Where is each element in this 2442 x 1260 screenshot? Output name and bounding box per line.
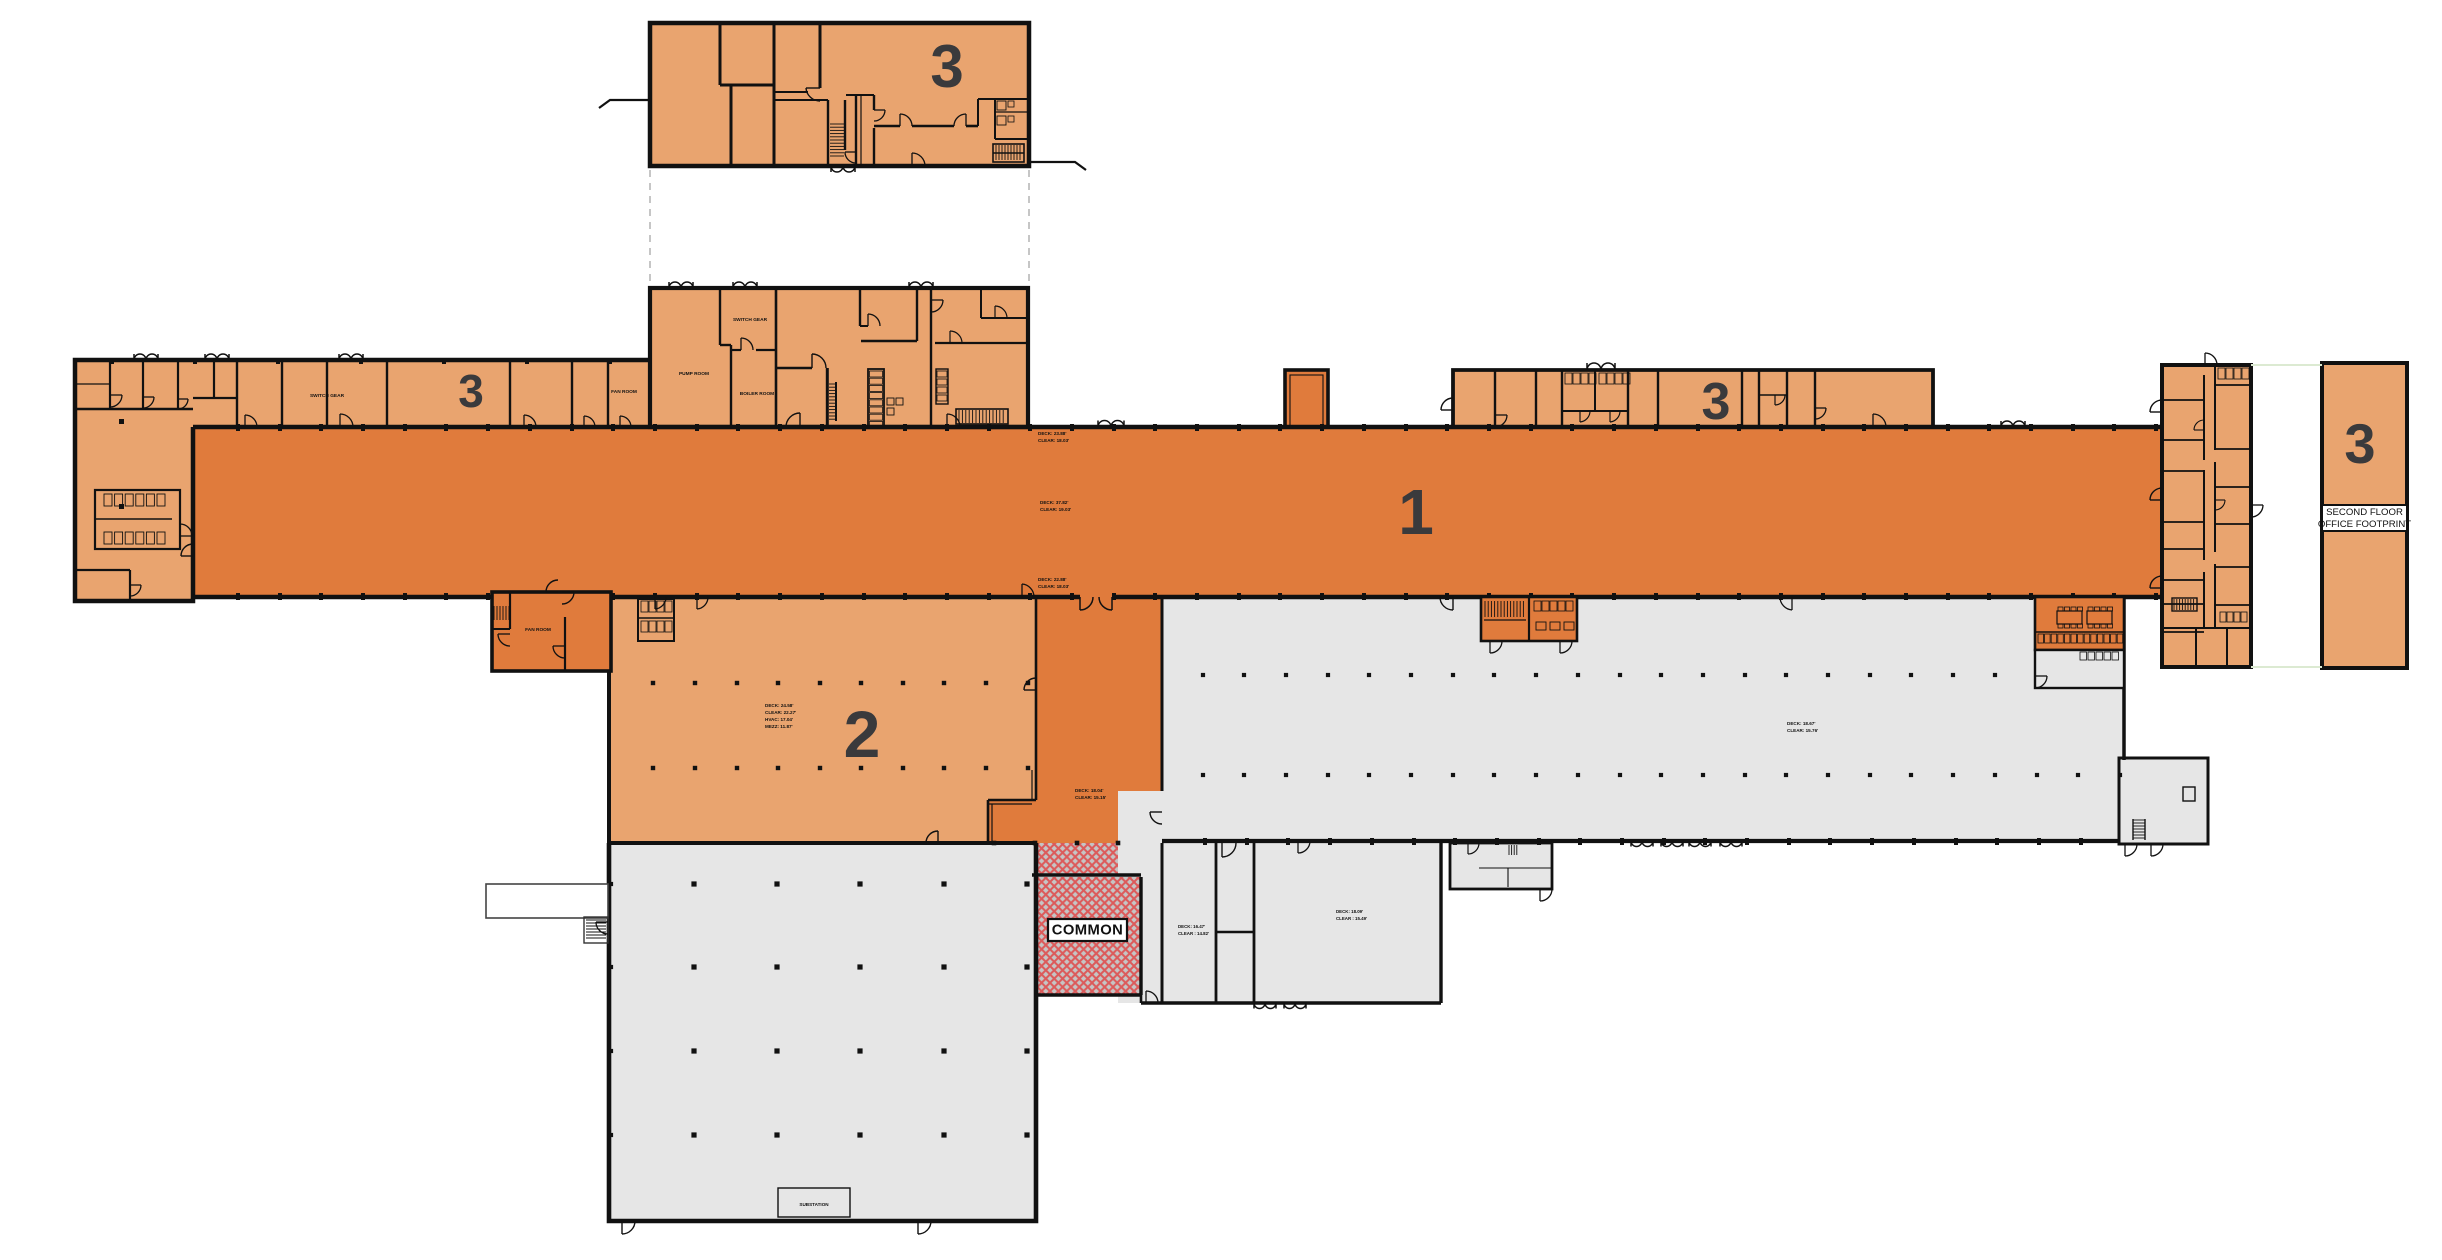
svg-text:HVAC: 17.04': HVAC: 17.04' [765, 717, 793, 722]
svg-text:DECK: 18.09': DECK: 18.09' [1336, 909, 1363, 914]
svg-text:DECK: 18.04': DECK: 18.04' [1075, 788, 1103, 793]
svg-text:CLEAR : 15.49': CLEAR : 15.49' [1336, 916, 1367, 921]
svg-text:DECK: 24.58': DECK: 24.58' [765, 703, 793, 708]
svg-text:FAN ROOM: FAN ROOM [525, 627, 551, 633]
svg-text:CLEAR: 18.03': CLEAR: 18.03' [1038, 584, 1069, 589]
svg-text:SWITCH GEAR: SWITCH GEAR [310, 393, 345, 399]
svg-text:SWITCH GEAR: SWITCH GEAR [733, 317, 768, 323]
svg-text:PUMP ROOM: PUMP ROOM [679, 371, 709, 377]
svg-text:CLEAR: 22.27': CLEAR: 22.27' [765, 710, 796, 715]
svg-text:BOILER ROOM: BOILER ROOM [740, 391, 774, 397]
svg-text:3: 3 [2344, 412, 2375, 475]
svg-text:3: 3 [930, 33, 963, 100]
svg-text:1: 1 [1398, 476, 1434, 548]
svg-text:CLEAR: 19.03': CLEAR: 19.03' [1040, 507, 1071, 512]
svg-text:SECOND FLOOR: SECOND FLOOR [2326, 507, 2403, 518]
svg-text:MEZZ: 11.87': MEZZ: 11.87' [765, 724, 793, 729]
svg-text:3: 3 [1702, 373, 1731, 431]
svg-text:CLEAR: 15.15': CLEAR: 15.15' [1075, 795, 1106, 800]
svg-text:DECK: 16.47': DECK: 16.47' [1178, 924, 1205, 929]
svg-text:CLEAR: 15.76': CLEAR: 15.76' [1787, 728, 1818, 733]
svg-text:DECK: 37.82': DECK: 37.82' [1040, 500, 1068, 505]
svg-text:3: 3 [458, 365, 484, 417]
svg-text:CLEAR: 18.03': CLEAR: 18.03' [1038, 438, 1069, 443]
svg-text:COMMON: COMMON [1052, 923, 1123, 939]
svg-text:SUBSTATION: SUBSTATION [799, 1202, 829, 1207]
svg-text:2: 2 [844, 697, 881, 771]
svg-text:OFFICE FOOTPRINT: OFFICE FOOTPRINT [2318, 519, 2411, 530]
svg-text:FAN ROOM: FAN ROOM [611, 389, 637, 395]
svg-text:CLEAR : 14.82': CLEAR : 14.82' [1178, 931, 1209, 936]
svg-text:DECK: 18.67': DECK: 18.67' [1787, 721, 1815, 726]
svg-text:DECK: 22.88': DECK: 22.88' [1038, 577, 1066, 582]
svg-text:DECK: 23.88': DECK: 23.88' [1038, 431, 1066, 436]
